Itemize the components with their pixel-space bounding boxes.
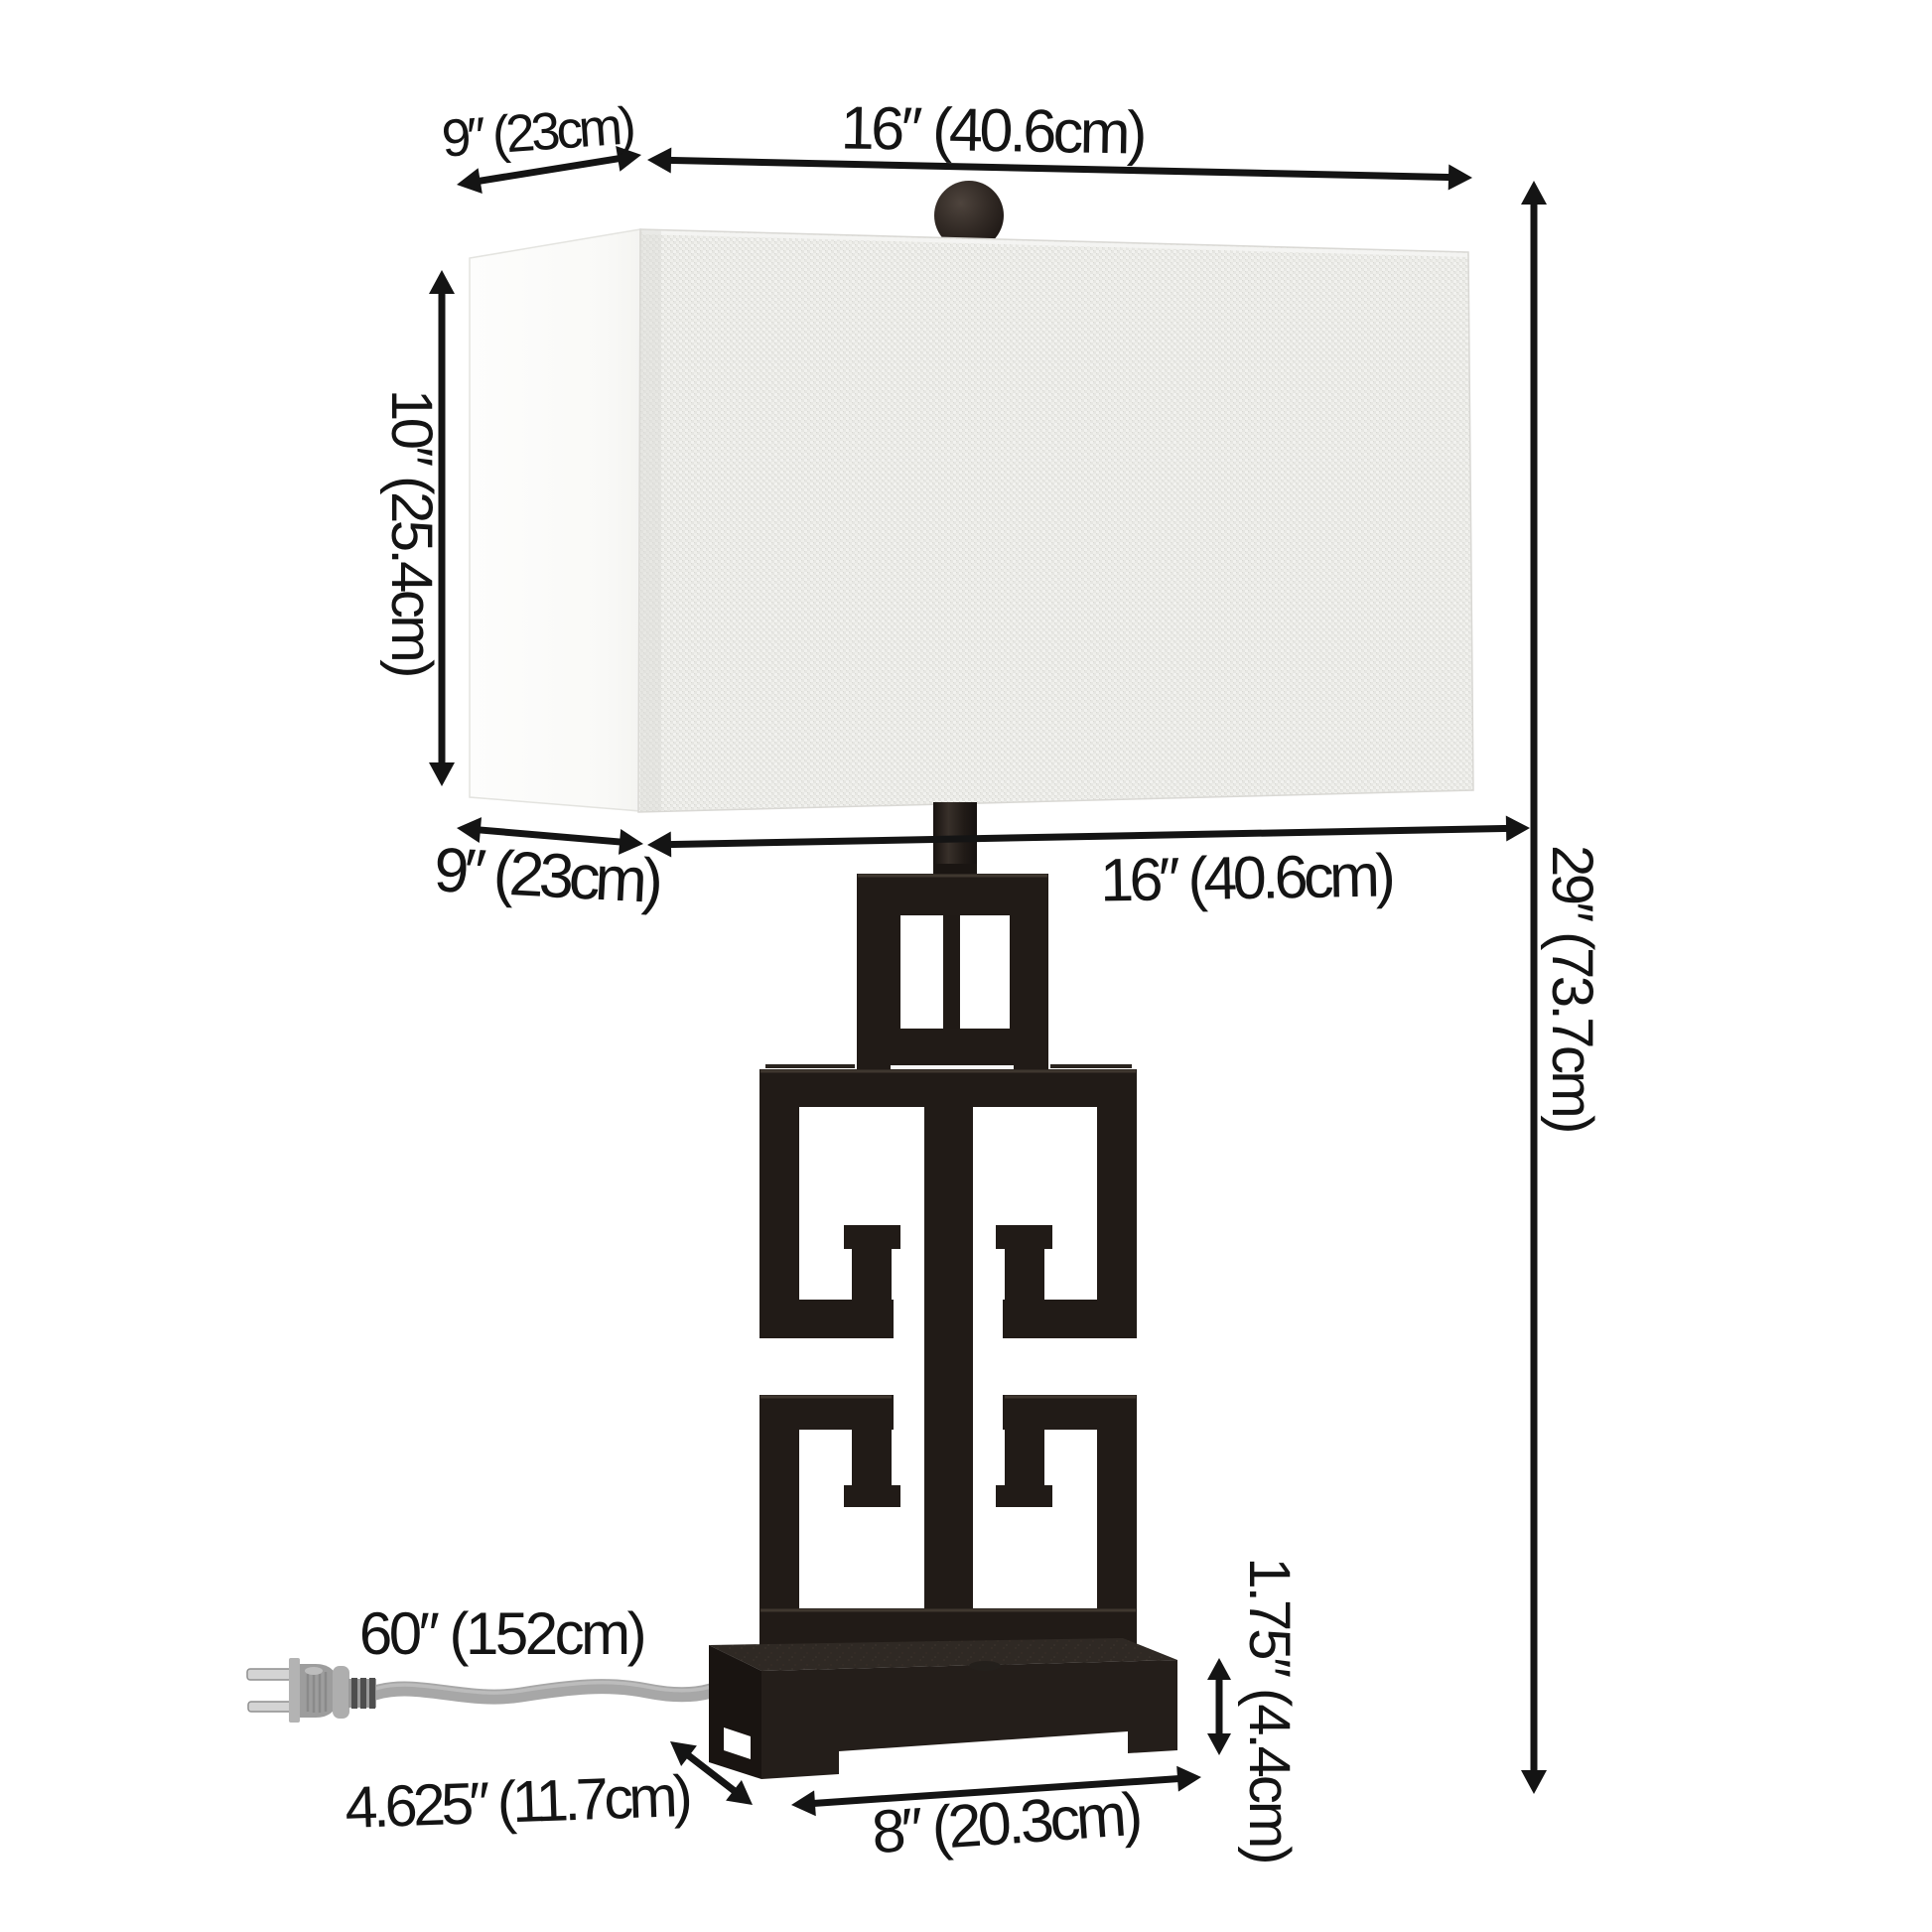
svg-text:16″ (40.6cm): 16″ (40.6cm) bbox=[1100, 841, 1393, 913]
svg-text:1.75″ (4.4cm): 1.75″ (4.4cm) bbox=[1237, 1557, 1302, 1862]
svg-text:29″ (73.7cm): 29″ (73.7cm) bbox=[1540, 845, 1604, 1131]
svg-text:10″ (25.4cm): 10″ (25.4cm) bbox=[379, 389, 444, 675]
svg-text:4.625″ (11.7cm): 4.625″ (11.7cm) bbox=[344, 1763, 690, 1841]
svg-text:60″ (152cm): 60″ (152cm) bbox=[359, 1600, 644, 1667]
svg-text:9″ (23cm): 9″ (23cm) bbox=[432, 835, 661, 916]
svg-text:16″ (40.6cm): 16″ (40.6cm) bbox=[840, 93, 1144, 166]
